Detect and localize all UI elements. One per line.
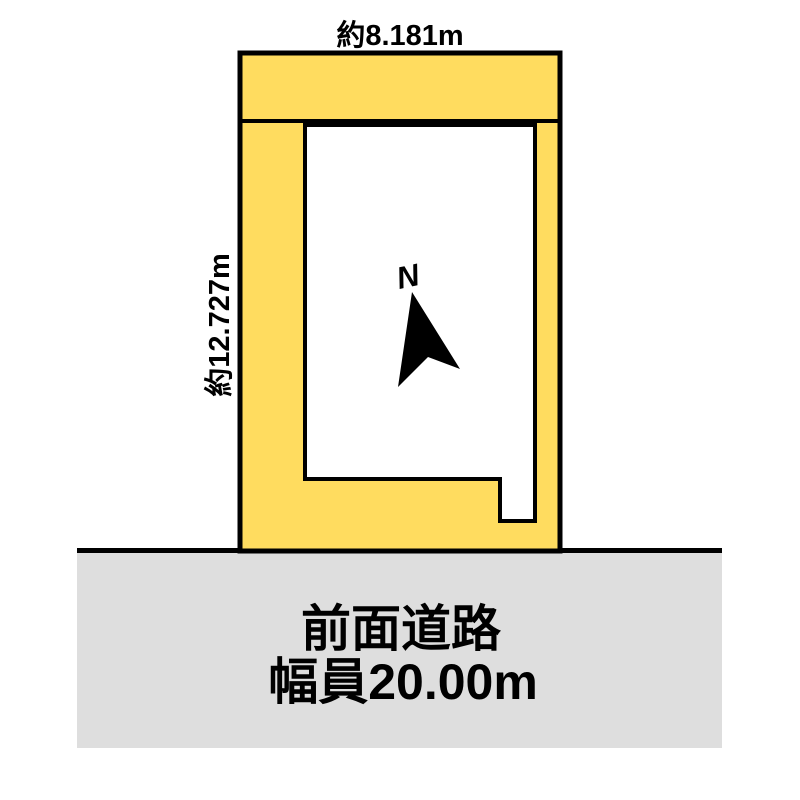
land-plot-diagram: N 約8.181m 約12.727m 前面道路 幅員20.00m	[0, 0, 800, 800]
road-width-label: 幅員20.00m	[268, 654, 538, 710]
road-name-label: 前面道路	[301, 601, 502, 657]
top-dimension-label: 約8.181m	[336, 18, 463, 52]
left-dimension-label: 約12.727m	[202, 253, 236, 397]
